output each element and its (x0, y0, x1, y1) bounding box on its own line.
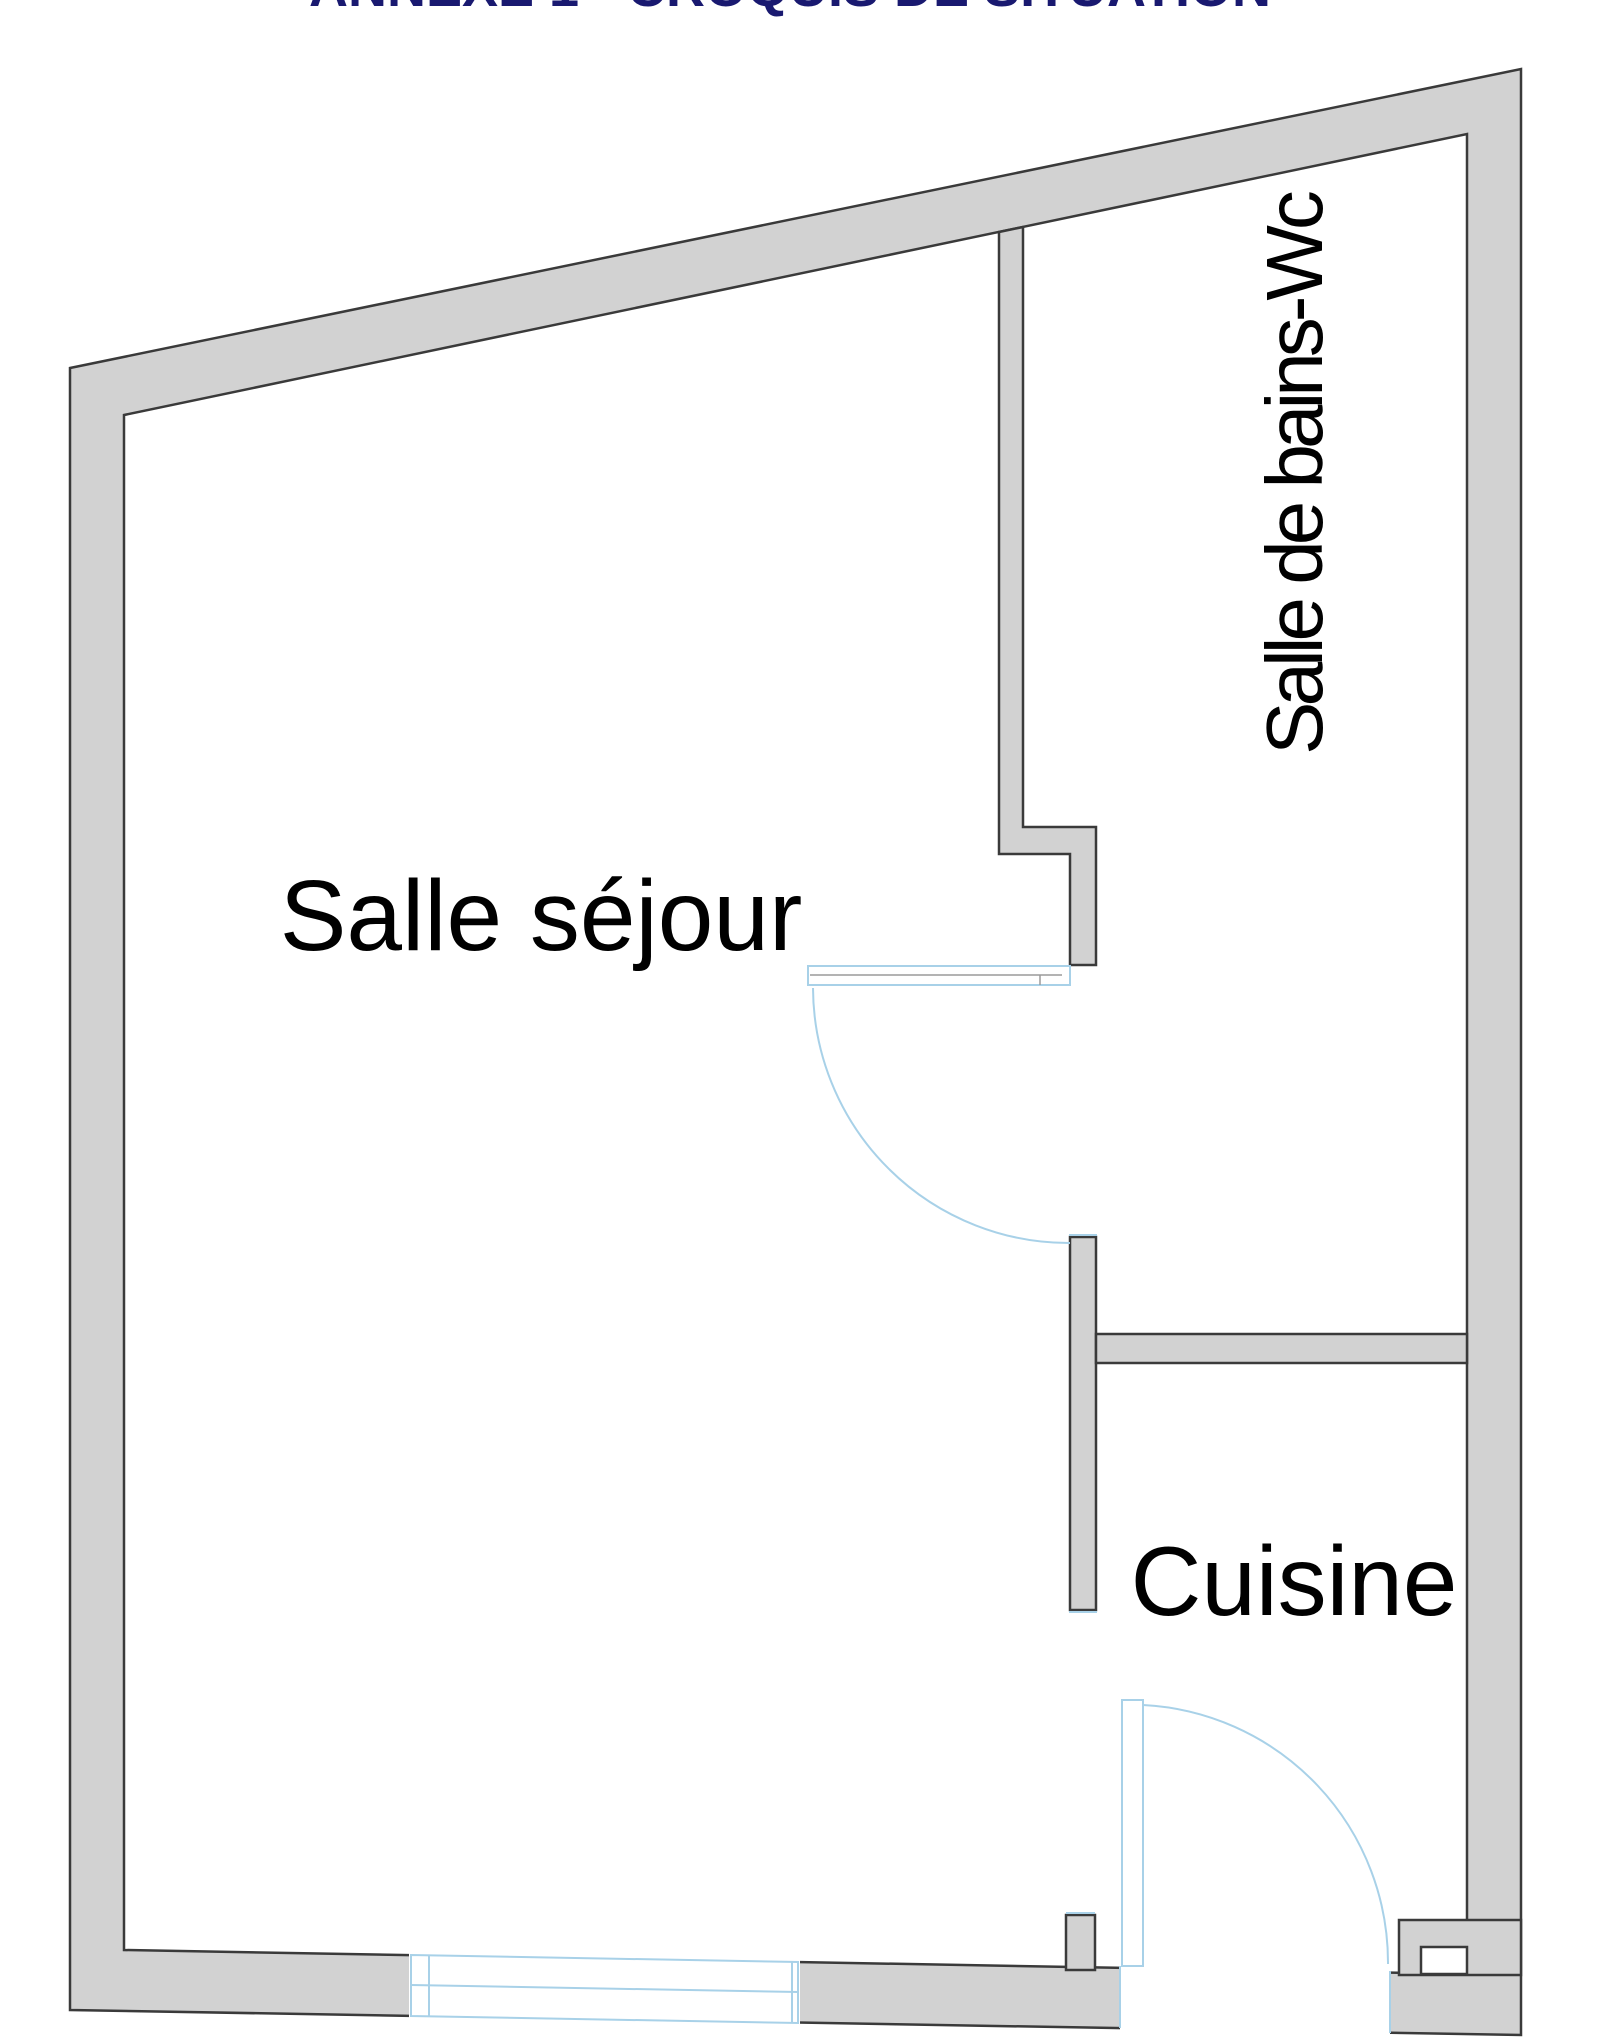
room-label-living: Salle séjour (280, 860, 803, 972)
room-label-kitchen: Cuisine (1131, 1526, 1458, 1636)
partition-wall-living-bathroom (999, 227, 1096, 965)
entrance-door-opening (1120, 1963, 1390, 2036)
hall-wall-stub (1070, 1237, 1096, 1610)
entrance-jamb-stub (1066, 1915, 1095, 1970)
floor-plan-svg: ANNEXE 1 - CROQUIS DE SITUATION Salle sé… (0, 0, 1600, 2038)
entrance-door-leaf (1122, 1700, 1143, 1966)
page-title: ANNEXE 1 - CROQUIS DE SITUATION (309, 0, 1271, 18)
wall-bathroom-kitchen (1096, 1334, 1467, 1363)
room-label-bathroom: Salle de bains-Wc (1250, 192, 1339, 755)
floor-plan-page: ANNEXE 1 - CROQUIS DE SITUATION Salle sé… (0, 0, 1600, 2038)
entrance-door-arc (1143, 1705, 1388, 1964)
living-door-arc (813, 988, 1070, 1243)
corner-duct-notch (1421, 1947, 1467, 1974)
